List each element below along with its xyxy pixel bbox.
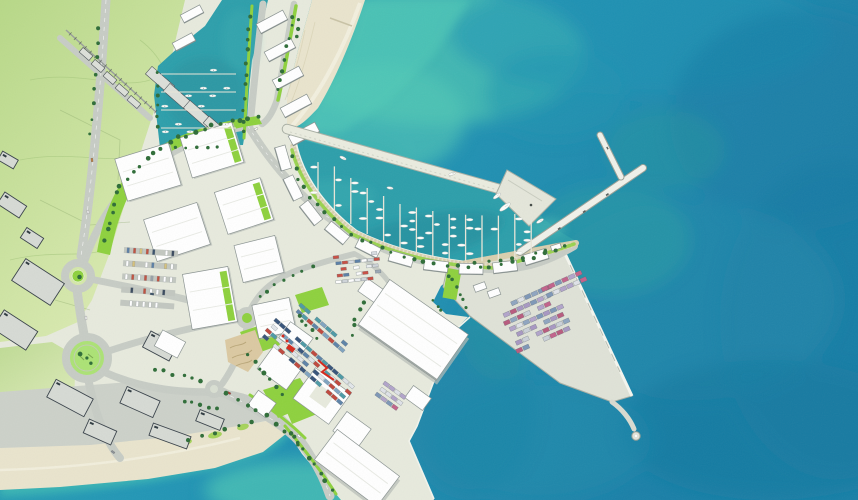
port-master-plan-map [0, 0, 858, 500]
paper-grain-overlay [0, 0, 858, 500]
